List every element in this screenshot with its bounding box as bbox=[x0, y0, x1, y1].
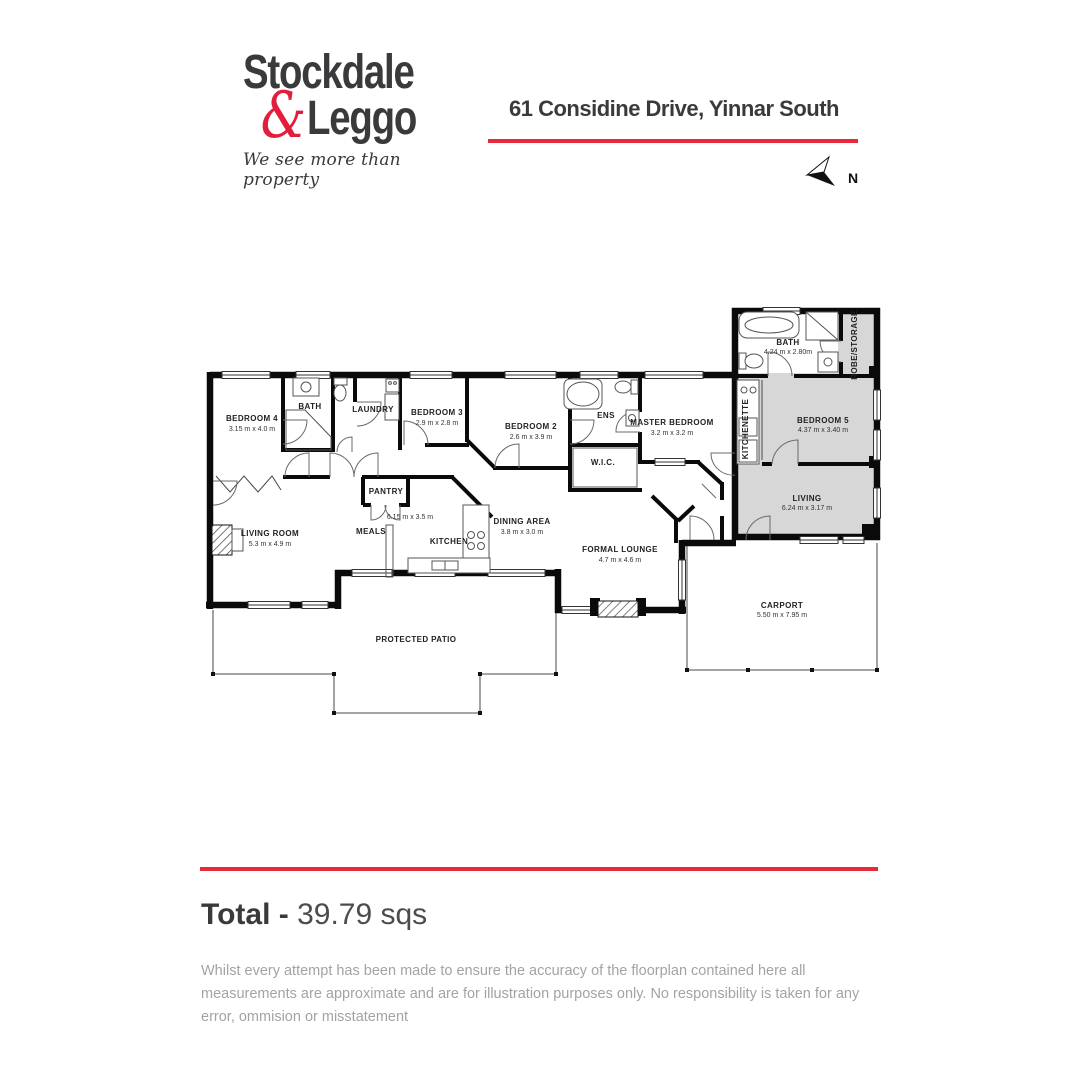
label-dining-area: DINING AREA bbox=[494, 517, 551, 526]
kitchen-bench bbox=[463, 505, 489, 561]
label-bedroom-5: BEDROOM 5 bbox=[797, 416, 849, 425]
label-master-bedroom: MASTER BEDROOM bbox=[630, 418, 713, 427]
floorplan-page: Stockdale & Leggo We see more than prope… bbox=[0, 0, 1080, 1080]
floor-plan: BEDROOM 4 3.15 m x 4.0 m BATH LAUNDRY BE… bbox=[0, 0, 1080, 1080]
unit-wc-toilet bbox=[745, 354, 763, 368]
unit-bathtub bbox=[739, 312, 799, 338]
dims-unit-living: 6.24 m x 3.17 m bbox=[782, 505, 832, 512]
wc-cistern bbox=[334, 378, 347, 385]
label-bedroom-3: BEDROOM 3 bbox=[411, 408, 463, 417]
label-laundry: LAUNDRY bbox=[352, 405, 394, 414]
label-pantry: PANTRY bbox=[369, 487, 404, 496]
open-wall-zigzag bbox=[216, 476, 281, 492]
dims-bedroom-2: 2.6 m x 3.9 m bbox=[510, 434, 553, 441]
total-area: Total - 39.79 sqs bbox=[201, 898, 427, 932]
label-living-room: LIVING ROOM bbox=[241, 529, 299, 538]
ens-toilet bbox=[615, 381, 631, 393]
dims-carport: 5.50 m x 7.95 m bbox=[757, 612, 807, 619]
corner-bath bbox=[286, 410, 331, 450]
dims-master-bedroom: 3.2 m x 3.2 m bbox=[651, 430, 694, 437]
wic-shelves bbox=[573, 448, 637, 487]
label-meals: MEALS bbox=[356, 527, 386, 536]
label-unit-living: LIVING bbox=[792, 494, 821, 503]
dims-formal-lounge: 4.7 m x 4.6 m bbox=[599, 557, 642, 564]
label-robe-storage: ROBE/STORAGE bbox=[850, 310, 859, 380]
wc-toilet bbox=[334, 385, 346, 401]
label-kitchen: KITCHEN bbox=[430, 537, 468, 546]
total-value: 39.79 sqs bbox=[297, 898, 427, 931]
total-label: Total - bbox=[201, 898, 297, 931]
label-formal-lounge: FORMAL LOUNGE bbox=[582, 545, 658, 554]
label-bedroom-2: BEDROOM 2 bbox=[505, 422, 557, 431]
label-ens: ENS bbox=[597, 411, 615, 420]
dims-living-room: 5.3 m x 4.9 m bbox=[249, 541, 292, 548]
formal-lounge-fireplace bbox=[590, 598, 646, 617]
dims-bedroom-5: 4.37 m x 3.40 m bbox=[798, 427, 848, 434]
ens-cistern bbox=[631, 380, 638, 394]
ens-spa bbox=[564, 379, 602, 409]
dims-dining-area: 3.8 m x 3.0 m bbox=[501, 529, 544, 536]
disclaimer-text: Whilst every attempt has been made to en… bbox=[201, 960, 877, 1030]
label-unit-bath: BATH bbox=[776, 338, 799, 347]
label-carport: CARPORT bbox=[761, 601, 803, 610]
bath-vanity bbox=[293, 378, 319, 396]
unit-vanity bbox=[818, 352, 838, 372]
patio-outline bbox=[211, 610, 558, 715]
dims-bedroom-3: 2.9 m x 2.8 m bbox=[416, 420, 459, 427]
laundry-trough bbox=[386, 379, 399, 392]
label-protected-patio: PROTECTED PATIO bbox=[376, 635, 457, 644]
kitchen-counter bbox=[408, 558, 490, 573]
dims-meals-kitchen: 6.15 m x 3.5 m bbox=[387, 514, 433, 521]
living-room-fireplace bbox=[212, 525, 243, 555]
dims-bedroom-4: 3.15 m x 4.0 m bbox=[229, 426, 275, 433]
label-wic: W.I.C. bbox=[591, 458, 615, 467]
dims-unit-bath: 4.24 m x 2.80m bbox=[764, 349, 812, 356]
footer-rule bbox=[200, 867, 878, 871]
label-bedroom-4: BEDROOM 4 bbox=[226, 414, 278, 423]
label-bath: BATH bbox=[298, 402, 321, 411]
label-kitchenette: KITCHENETTE bbox=[741, 399, 750, 460]
